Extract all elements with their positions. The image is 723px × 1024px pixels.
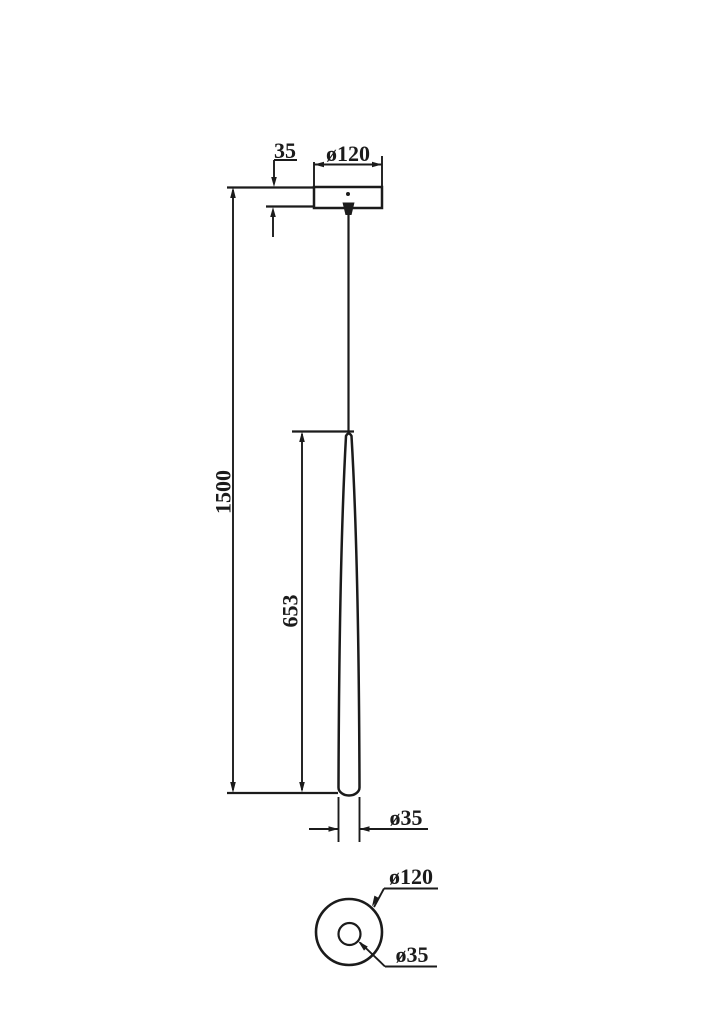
arrow-down-icon (271, 177, 277, 187)
arrow-down-icon (230, 782, 236, 793)
cone-shade-outline (339, 434, 360, 796)
technical-drawing-page: 35 ø120 1500 653 (0, 0, 723, 1024)
canopy-diameter-label: ø120 (326, 141, 370, 166)
arrow-up-icon (230, 187, 236, 198)
bottom-view: ø120 ø35 (316, 864, 438, 967)
pendant-lamp-drawing: 35 ø120 1500 653 (0, 0, 723, 1024)
suspension-length-label: 1500 (211, 470, 236, 514)
arrow-down-icon (299, 782, 305, 793)
leader-shade-diameter: ø35 (358, 941, 437, 967)
shade-diameter-label: ø35 (390, 805, 423, 830)
dimension-shade-diameter: ø35 (309, 797, 428, 842)
leader-canopy-diameter: ø120 (372, 864, 438, 907)
arrow-right-icon (372, 162, 382, 168)
canopy-screw-dot (346, 192, 350, 196)
dimension-suspension-length: 1500 (211, 187, 339, 793)
canopy-height-label: 35 (274, 138, 296, 163)
arrow-left-icon (360, 826, 370, 832)
shade-length-label: 653 (278, 595, 303, 628)
dimension-canopy-diameter: ø120 (314, 141, 382, 187)
side-view (314, 187, 382, 796)
arrow-right-icon (329, 826, 339, 832)
dimension-canopy-height: 35 (227, 138, 314, 237)
cord-grip (343, 203, 355, 216)
bottom-view-shade-circle (339, 923, 361, 945)
arrow-left-icon (314, 162, 324, 168)
bottom-canopy-diameter-label: ø120 (389, 864, 433, 889)
bottom-shade-diameter-label: ø35 (396, 942, 429, 967)
arrow-up-icon (270, 207, 276, 217)
arrow-up-icon (299, 432, 305, 443)
